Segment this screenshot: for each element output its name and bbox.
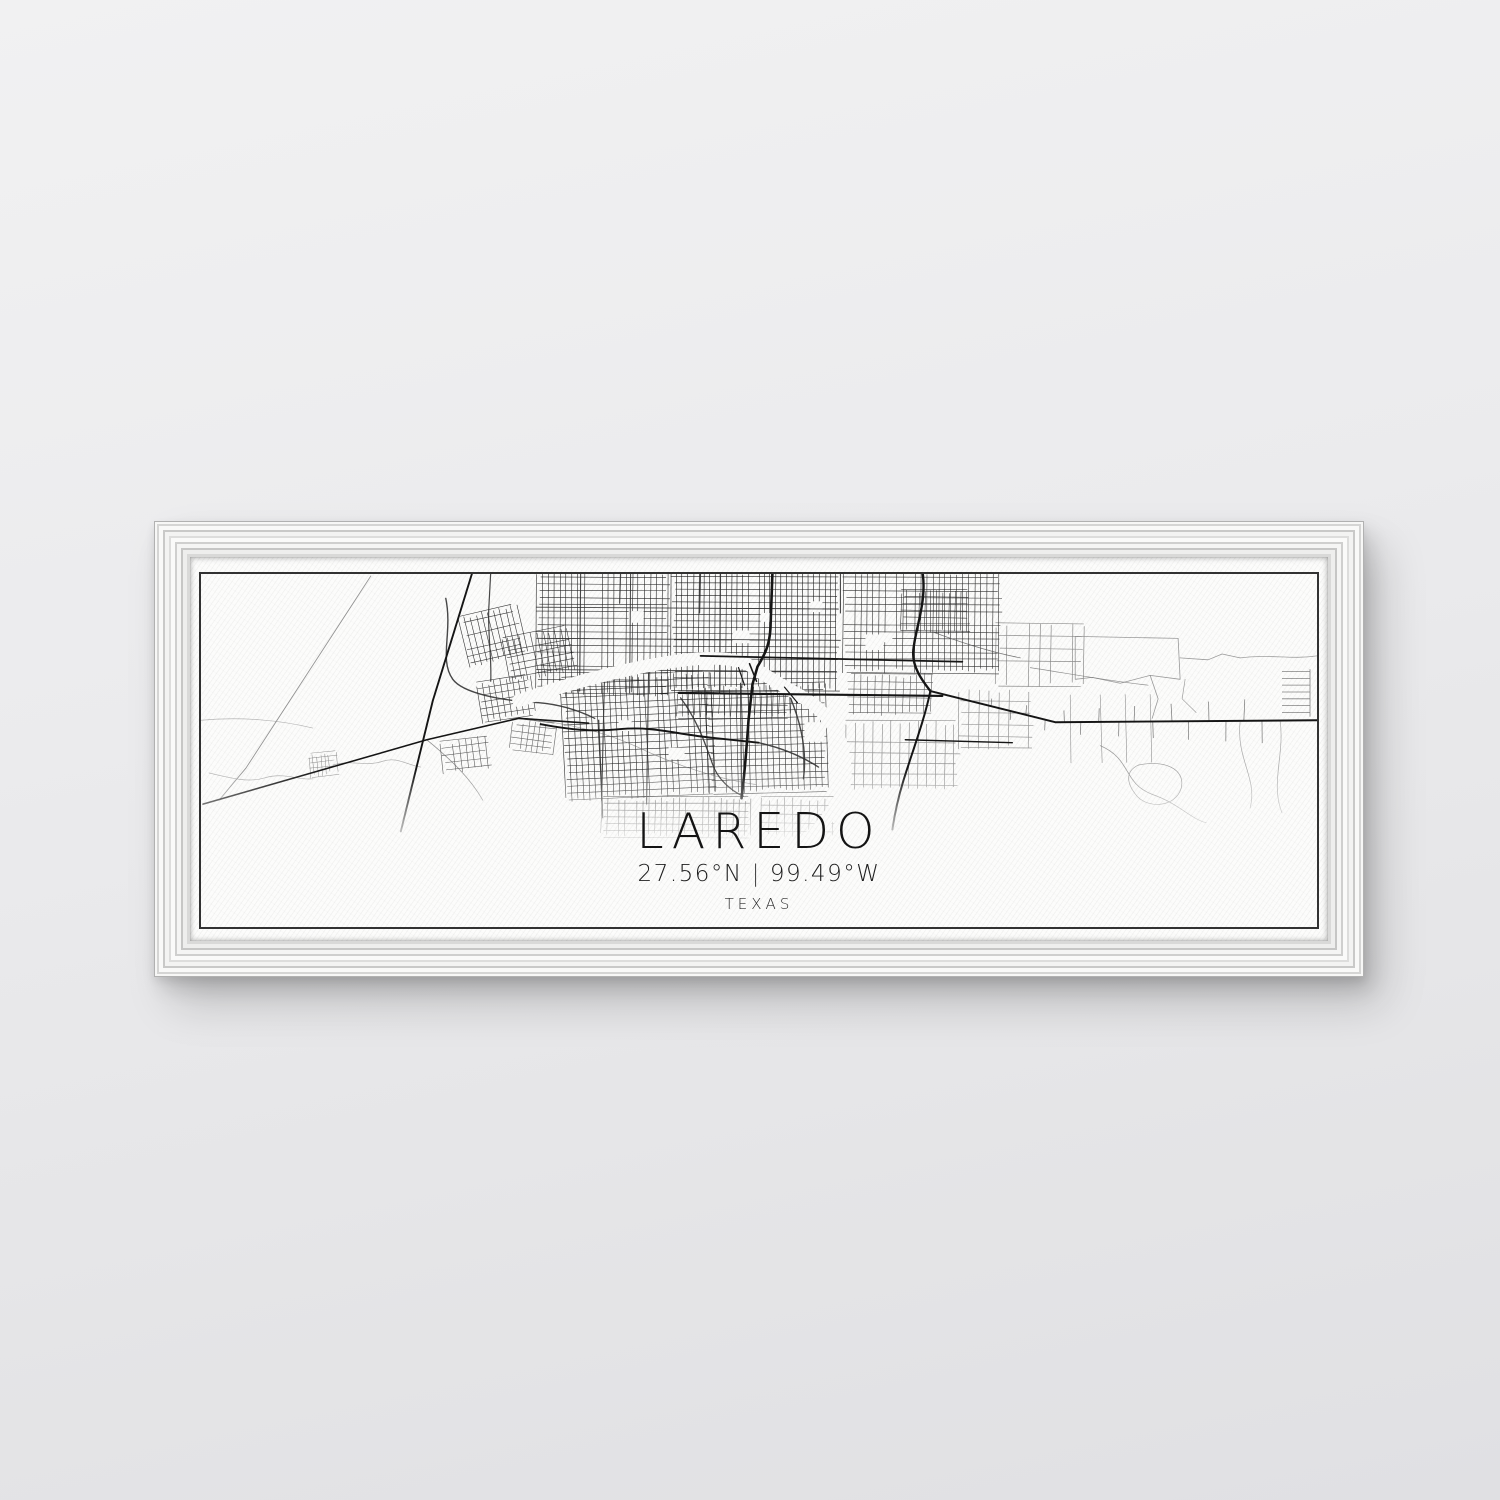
wall: LAREDO 27.56°N|99.49°W TEXAS — [0, 0, 1500, 1500]
map-border: LAREDO 27.56°N|99.49°W TEXAS — [199, 572, 1319, 929]
canvas-print: LAREDO 27.56°N|99.49°W TEXAS — [190, 557, 1328, 941]
title-block: LAREDO 27.56°N|99.49°W TEXAS — [201, 807, 1317, 913]
longitude-label: 99.49°W — [770, 861, 881, 887]
latitude-label: 27.56°N — [638, 861, 743, 887]
coordinates-label: 27.56°N|99.49°W — [201, 861, 1317, 887]
city-title: LAREDO — [201, 807, 1317, 856]
picture-frame: LAREDO 27.56°N|99.49°W TEXAS — [154, 521, 1364, 977]
coordinates-separator: | — [743, 861, 770, 887]
state-label: TEXAS — [201, 896, 1317, 913]
